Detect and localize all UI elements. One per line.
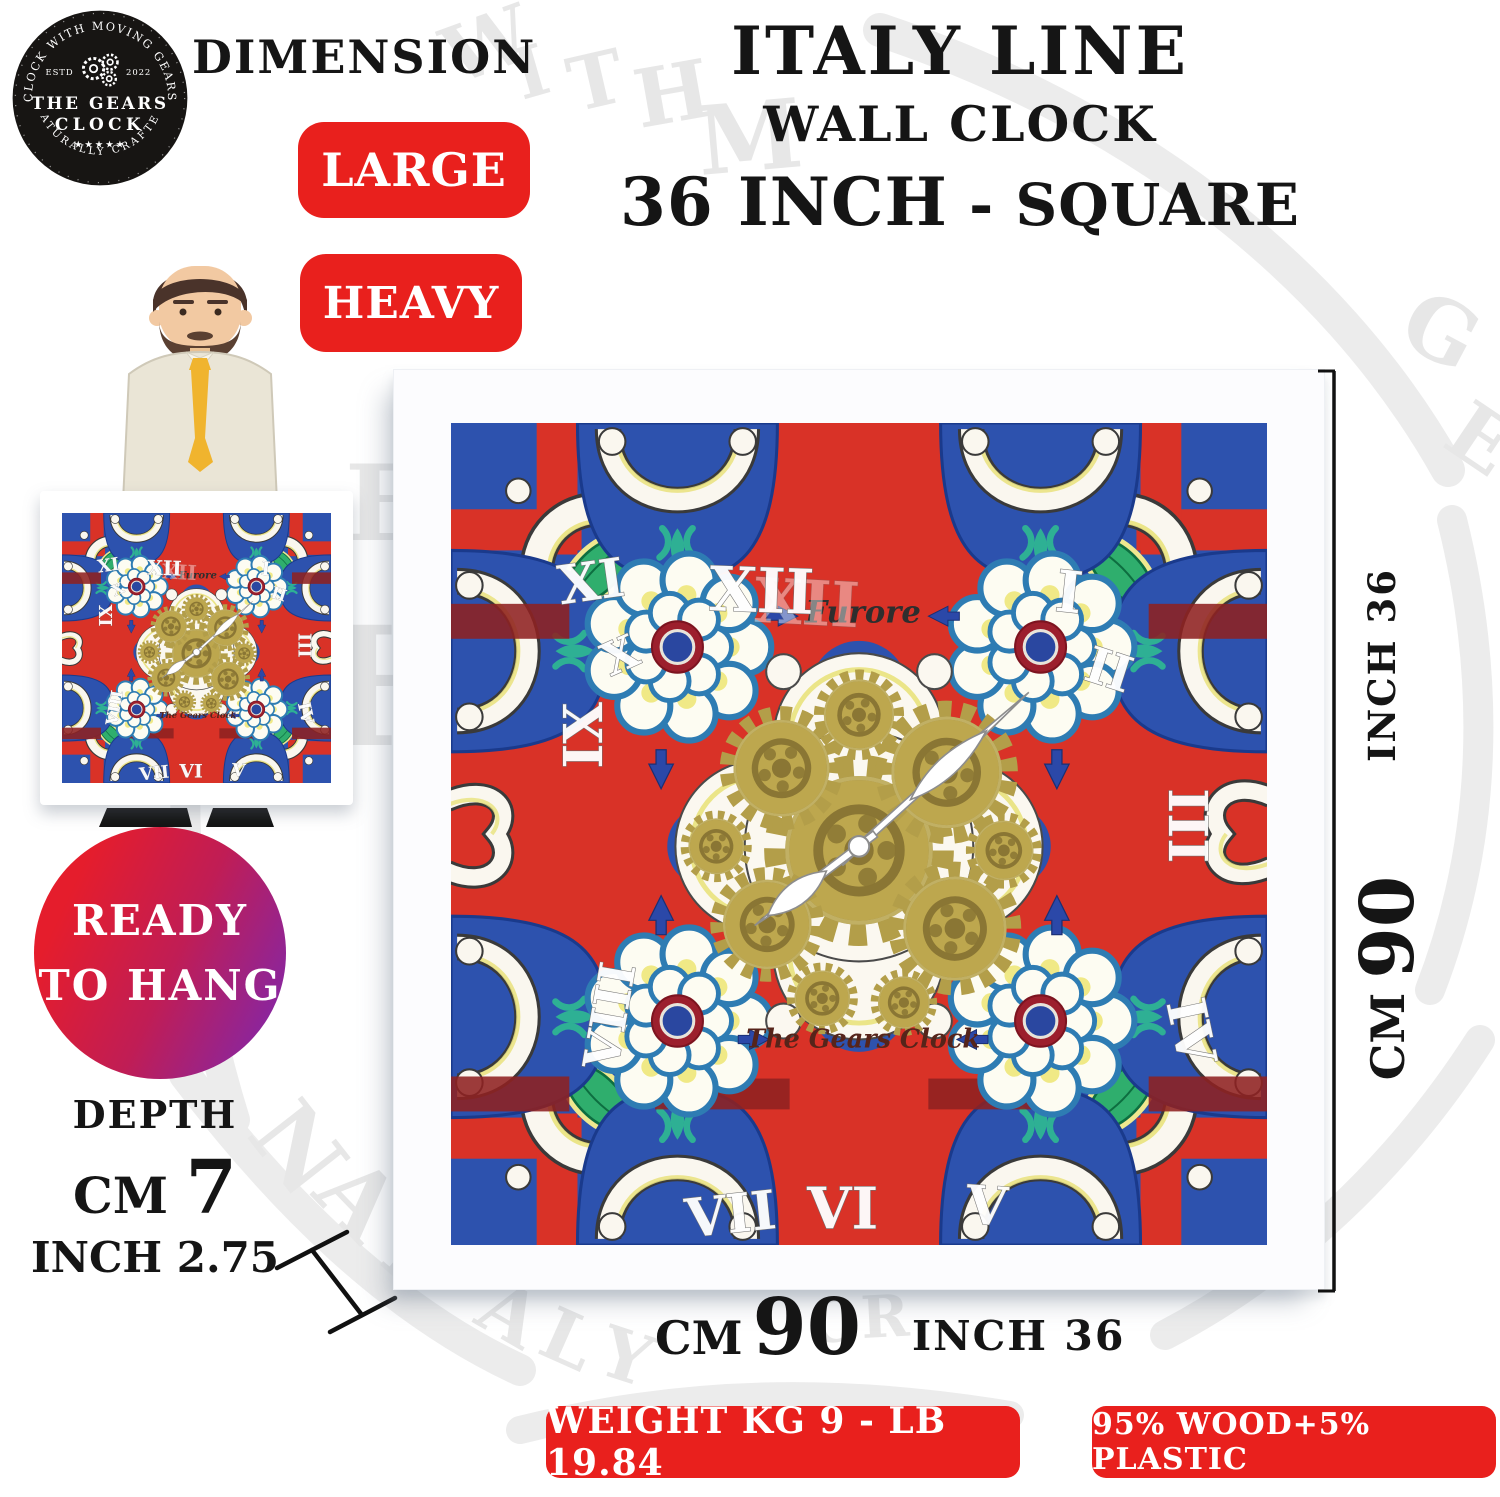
logo-year: 2022 xyxy=(126,67,151,77)
left-shoe xyxy=(99,808,192,827)
right-shoe xyxy=(206,808,274,827)
logo-name-2: CLOCK xyxy=(55,114,145,134)
material-badge: 95% WOOD+5% PLASTIC xyxy=(1092,1406,1496,1478)
ready-to-hang-badge: READY TO HANG xyxy=(34,827,286,1079)
height-inch-label: INCH 36 xyxy=(1357,555,1407,775)
title-size: 36 INCH xyxy=(620,163,948,241)
badge-heavy: HEAVY xyxy=(300,254,522,352)
title-line2: WALL CLOCK xyxy=(620,93,1300,157)
title-shape: - SQUARE xyxy=(969,171,1300,239)
title-line3: 36 INCH - SQUARE xyxy=(620,156,1300,248)
depth-cm-value: 7 xyxy=(186,1145,238,1231)
height-cm-label: CM 90 xyxy=(1358,852,1418,1104)
logo-name-1: THE GEARS xyxy=(31,93,168,113)
weight-badge: WEIGHT KG 9 - LB 19.84 xyxy=(546,1406,1020,1478)
width-inch-label: INCH 36 xyxy=(912,1312,1125,1360)
depth-spec: DEPTH CM 7 INCH 2.75 xyxy=(25,1092,285,1282)
width-cm-label: CM 90 xyxy=(655,1282,861,1373)
dimension-heading: DIMENSION xyxy=(192,30,536,84)
main-clock-face xyxy=(451,423,1267,1245)
small-clock-face xyxy=(62,513,331,783)
logo-stars: ★★★★★ xyxy=(74,140,126,151)
badge-large: LARGE xyxy=(298,122,530,218)
logo-estd: ESTD xyxy=(45,67,73,77)
depth-label: DEPTH xyxy=(25,1092,285,1137)
svg-text:R: R xyxy=(859,1282,911,1352)
main-clock-image xyxy=(393,369,1325,1290)
product-infographic: { "logo": { "arc_top": "CLOCK WITH MOVIN… xyxy=(0,0,1500,1497)
ready-line2: TO HANG xyxy=(39,953,282,1018)
height-dimension-line xyxy=(1312,364,1362,1298)
brand-logo: CLOCK WITH MOVING GEARS NATURALLY CRAFTE… xyxy=(8,6,192,190)
ready-line1: READY xyxy=(72,888,248,953)
title-block: ITALY LINE WALL CLOCK 36 INCH - SQUARE xyxy=(620,10,1300,249)
depth-inch-label: INCH xyxy=(31,1233,162,1282)
depth-cm-label: CM xyxy=(73,1166,168,1225)
small-clock-preview xyxy=(40,491,353,805)
title-line1: ITALY LINE xyxy=(620,10,1300,93)
depth-dimension-marker xyxy=(255,1215,415,1355)
